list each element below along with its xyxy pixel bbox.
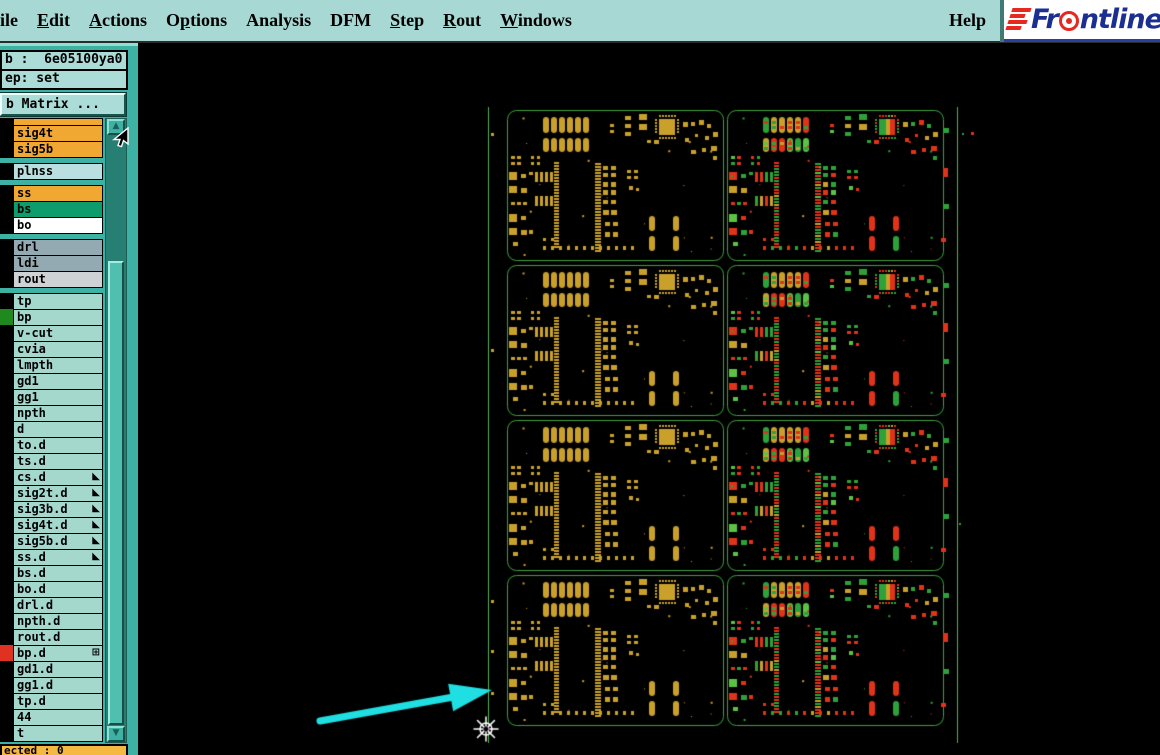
layer-row-cvia[interactable]: cvia [0, 341, 103, 358]
layer-color-swatch [0, 725, 13, 742]
layer-row-npth[interactable]: npth [0, 405, 103, 422]
layer-label: sig2t.d◣ [13, 485, 103, 502]
layer-label: bo.d [13, 581, 103, 598]
layer-color-swatch [0, 341, 13, 358]
layer-color-swatch [0, 405, 13, 422]
layer-color-swatch [0, 125, 13, 142]
layer-flag-icon: ◣ [92, 486, 100, 500]
layer-row-sig5b.d[interactable]: sig5b.d◣ [0, 533, 103, 550]
layer-label: ss.d◣ [13, 549, 103, 566]
layer-flag-icon: ◣ [92, 502, 100, 516]
menu-bar: ileEditActionsOptionsAnalysisDFMStepRout… [0, 0, 1160, 43]
layer-label: lmpth [13, 357, 103, 374]
layer-row-gg1[interactable]: gg1 [0, 389, 103, 406]
layer-color-swatch [0, 271, 13, 288]
layer-color-swatch [0, 549, 13, 566]
layer-row-sig4t[interactable]: sig4t [0, 125, 103, 142]
layer-color-swatch [0, 185, 13, 202]
menu-item-rout[interactable]: Rout [443, 10, 481, 31]
layer-label: to.d [13, 437, 103, 454]
layer-label: sig5b.d◣ [13, 533, 103, 550]
layer-row-sig4t.d[interactable]: sig4t.d◣ [0, 517, 103, 534]
layer-color-swatch [0, 645, 13, 662]
menu-item-step[interactable]: Step [390, 10, 424, 31]
layer-row-ss[interactable]: ss [0, 185, 103, 202]
layer-label: bo [13, 217, 103, 234]
layer-color-swatch [0, 255, 13, 272]
job-matrix-button[interactable]: b Matrix ... [0, 93, 126, 116]
layer-label: cs.d◣ [13, 469, 103, 486]
layer-color-swatch [0, 453, 13, 470]
layer-color-swatch [0, 141, 13, 158]
layer-label: cvia [13, 341, 103, 358]
layer-row-drl.d[interactable]: drl.d [0, 597, 103, 614]
layer-label: bs [13, 201, 103, 218]
layer-row-to.d[interactable]: to.d [0, 437, 103, 454]
layer-label: tp.d [13, 693, 103, 710]
layer-row-rout[interactable]: rout [0, 271, 103, 288]
layer-color-swatch [0, 421, 13, 438]
layer-color-swatch [0, 501, 13, 518]
layer-row-bs[interactable]: bs [0, 201, 103, 218]
layer-label: npth.d [13, 613, 103, 630]
layer-row-tp[interactable]: tp [0, 293, 103, 310]
layer-row-npth.d[interactable]: npth.d [0, 613, 103, 630]
layer-color-swatch [0, 517, 13, 534]
layer-label: plnss [13, 163, 103, 180]
layer-flag-icon: ◣ [92, 550, 100, 564]
step-name-field: ep: set [0, 69, 128, 90]
layer-color-swatch [0, 629, 13, 646]
scrollbar-thumb[interactable] [108, 261, 124, 725]
layer-list: sig4tsig5bplnssssbsbodrlldirouttpbpv-cut… [0, 118, 103, 743]
layer-color-swatch [0, 613, 13, 630]
layer-label: v-cut [13, 325, 103, 342]
layer-color-swatch [0, 357, 13, 374]
layer-color-swatch [0, 239, 13, 256]
layer-row-sig3b.d[interactable]: sig3b.d◣ [0, 501, 103, 518]
layer-label: 44 [13, 709, 103, 726]
layer-color-swatch [0, 677, 13, 694]
layer-label: drl.d [13, 597, 103, 614]
layer-label: ts.d [13, 453, 103, 470]
layer-color-swatch [0, 325, 13, 342]
menu-item-help[interactable]: Help [949, 10, 986, 31]
layer-label: ldi [13, 255, 103, 272]
layer-color-swatch [0, 709, 13, 726]
layer-label: bp.d⊞ [13, 645, 103, 662]
menu-item-options[interactable]: Options [166, 10, 227, 31]
layer-label: sig3b.d◣ [13, 501, 103, 518]
layer-label: gd1 [13, 373, 103, 390]
layer-label: rout.d [13, 629, 103, 646]
layer-row-bp.d[interactable]: bp.d⊞ [0, 645, 103, 662]
cam-application-window: ileEditActionsOptionsAnalysisDFMStepRout… [0, 0, 1160, 755]
layer-color-swatch [0, 469, 13, 486]
layer-row-d[interactable]: d [0, 421, 103, 438]
layer-label: d [13, 421, 103, 438]
layer-color-swatch [0, 485, 13, 502]
layer-row-tp.d[interactable]: tp.d [0, 693, 103, 710]
logo-speed-bars-icon [1005, 8, 1031, 30]
layer-flag-icon: ◣ [92, 534, 100, 548]
layer-row-bo.d[interactable]: bo.d [0, 581, 103, 598]
layer-row-bp[interactable]: bp [0, 309, 103, 326]
layer-flag-icon: ◣ [92, 518, 100, 532]
layer-row-gg1.d[interactable]: gg1.d [0, 677, 103, 694]
layer-color-swatch [0, 309, 13, 326]
layer-color-swatch [0, 373, 13, 390]
job-name-field: b : 6e05100ya0 [0, 50, 128, 71]
menu-item-dfm[interactable]: DFM [330, 10, 371, 31]
layer-label: bp [13, 309, 103, 326]
layer-label: tp [13, 293, 103, 310]
layer-row-ss.d[interactable]: ss.d◣ [0, 549, 103, 566]
layer-row-sig5b[interactable]: sig5b [0, 141, 103, 158]
layer-row-rout.d[interactable]: rout.d [0, 629, 103, 646]
layer-color-swatch [0, 293, 13, 310]
layer-row-44[interactable]: 44 [0, 709, 103, 726]
menu-items: ileEditActionsOptionsAnalysisDFMStepRout… [0, 10, 572, 31]
logo-text: Fr ntline [1031, 4, 1160, 35]
layer-row-lmpth[interactable]: lmpth [0, 357, 103, 374]
layer-label: gd1.d [13, 661, 103, 678]
layer-row-drl[interactable]: drl [0, 239, 103, 256]
layer-color-swatch [0, 437, 13, 454]
layer-grid-icon: ⊞ [92, 646, 100, 660]
layer-row-ldi[interactable]: ldi [0, 255, 103, 272]
layer-label: gg1.d [13, 677, 103, 694]
layer-color-swatch [0, 389, 13, 406]
logo-text-suffix: ntline [1080, 4, 1160, 35]
layer-color-swatch [0, 565, 13, 582]
layer-flag-icon: ◣ [92, 470, 100, 484]
selected-count-status: ected : 0 [0, 744, 128, 755]
menu-item-edit[interactable]: Edit [37, 10, 70, 31]
layer-row-gd1[interactable]: gd1 [0, 373, 103, 390]
layer-label: bs.d [13, 565, 103, 582]
layer-color-swatch [0, 217, 13, 234]
layer-row-t[interactable]: t [0, 725, 103, 742]
layer-row-gd1.d[interactable]: gd1.d [0, 661, 103, 678]
layer-color-swatch [0, 163, 13, 180]
layer-label: drl [13, 239, 103, 256]
menu-item-ile[interactable]: ile [0, 10, 18, 31]
layer-label: sig4t [13, 125, 103, 142]
layer-row-v-cut[interactable]: v-cut [0, 325, 103, 342]
layer-list-scrollbar[interactable]: ▲ ▼ [105, 118, 127, 743]
layer-color-swatch [0, 201, 13, 218]
layer-label: ss [13, 185, 103, 202]
layer-row-sig2t.d[interactable]: sig2t.d◣ [0, 485, 103, 502]
layer-label: npth [13, 405, 103, 422]
layer-color-swatch [0, 533, 13, 550]
menu-item-analysis[interactable]: Analysis [246, 10, 311, 31]
layer-color-swatch [0, 661, 13, 678]
layer-label: t [13, 725, 103, 742]
pcb-panel-canvas[interactable] [138, 43, 1160, 755]
logo-target-icon [1059, 11, 1079, 31]
mouse-pointer-icon [109, 127, 131, 151]
layer-label: sig5b [13, 141, 103, 158]
layer-row-ts.d[interactable]: ts.d [0, 453, 103, 470]
layer-color-swatch [0, 597, 13, 614]
layer-row-cs.d[interactable]: cs.d◣ [0, 469, 103, 486]
layer-color-swatch [0, 693, 13, 710]
scroll-down-icon[interactable]: ▼ [107, 726, 125, 742]
layer-color-swatch [0, 581, 13, 598]
layer-label: rout [13, 271, 103, 288]
layer-row-bs.d[interactable]: bs.d [0, 565, 103, 582]
layer-row-bo[interactable]: bo [0, 217, 103, 234]
layer-label: gg1 [13, 389, 103, 406]
logo-text-prefix: Fr [1031, 4, 1058, 35]
layer-label: sig4t.d◣ [13, 517, 103, 534]
menu-item-actions[interactable]: Actions [89, 10, 147, 31]
menu-item-windows[interactable]: Windows [500, 10, 572, 31]
layer-row-plnss[interactable]: plnss [0, 163, 103, 180]
frontline-logo: Fr ntline [1004, 0, 1160, 42]
